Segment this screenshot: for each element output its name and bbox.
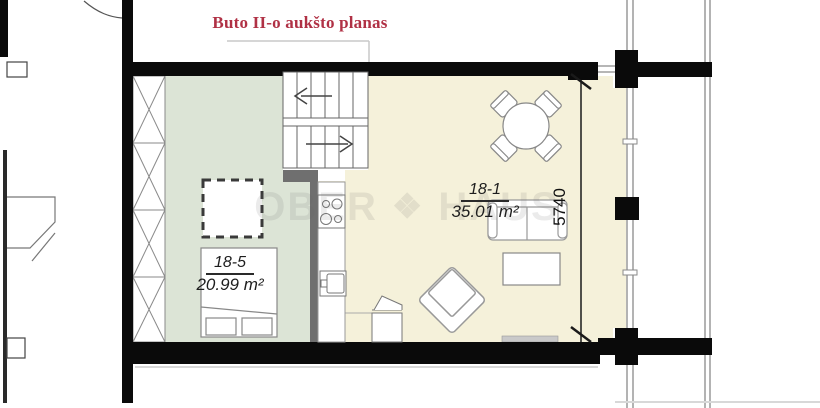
window-mullion — [623, 270, 637, 275]
left-outer-wall-thin — [3, 150, 7, 403]
dimension-label: 5740 — [545, 172, 575, 242]
room-18-5-area: 20.99 m² — [165, 276, 295, 294]
room-18-5-label: 18-5 20.99 m² — [165, 255, 295, 294]
wall-bottom-right — [638, 338, 712, 355]
staircase — [283, 72, 368, 168]
pillow — [242, 318, 272, 335]
sink — [320, 271, 346, 296]
room-18-1-number: 18-1 — [461, 182, 509, 202]
pier-mid-right — [615, 197, 639, 220]
column-top-right — [615, 50, 638, 88]
wall-outer-top-left — [0, 0, 8, 57]
left-lower-niche — [7, 338, 25, 358]
wall-top-right — [638, 62, 712, 77]
wardrobe-dashed — [203, 180, 262, 237]
door-swing-arc — [84, 1, 122, 18]
window-mullion — [623, 139, 637, 144]
room-18-1-label: 18-1 35.01 m² — [420, 182, 550, 221]
coffee-table — [503, 253, 560, 285]
room-18-1-area: 35.01 m² — [420, 203, 550, 221]
plan-title: Buto II-o aukšto planas — [150, 13, 450, 33]
dining-table — [503, 103, 549, 149]
window-sill — [502, 336, 558, 342]
column-bottom-right — [615, 328, 638, 365]
hatched-shaft — [133, 76, 165, 342]
room-18-5-number: 18-5 — [206, 255, 254, 275]
left-niche — [7, 62, 27, 77]
wall-bottom — [122, 342, 600, 364]
watermark-text-left: OBER — [254, 185, 378, 230]
left-bay-outline — [7, 197, 55, 248]
wall-top-pier — [568, 62, 598, 80]
pillow — [206, 318, 236, 335]
floor-plan: OBER ❖ HAUS Buto II-o aukšto planas 18-1… — [0, 0, 820, 408]
